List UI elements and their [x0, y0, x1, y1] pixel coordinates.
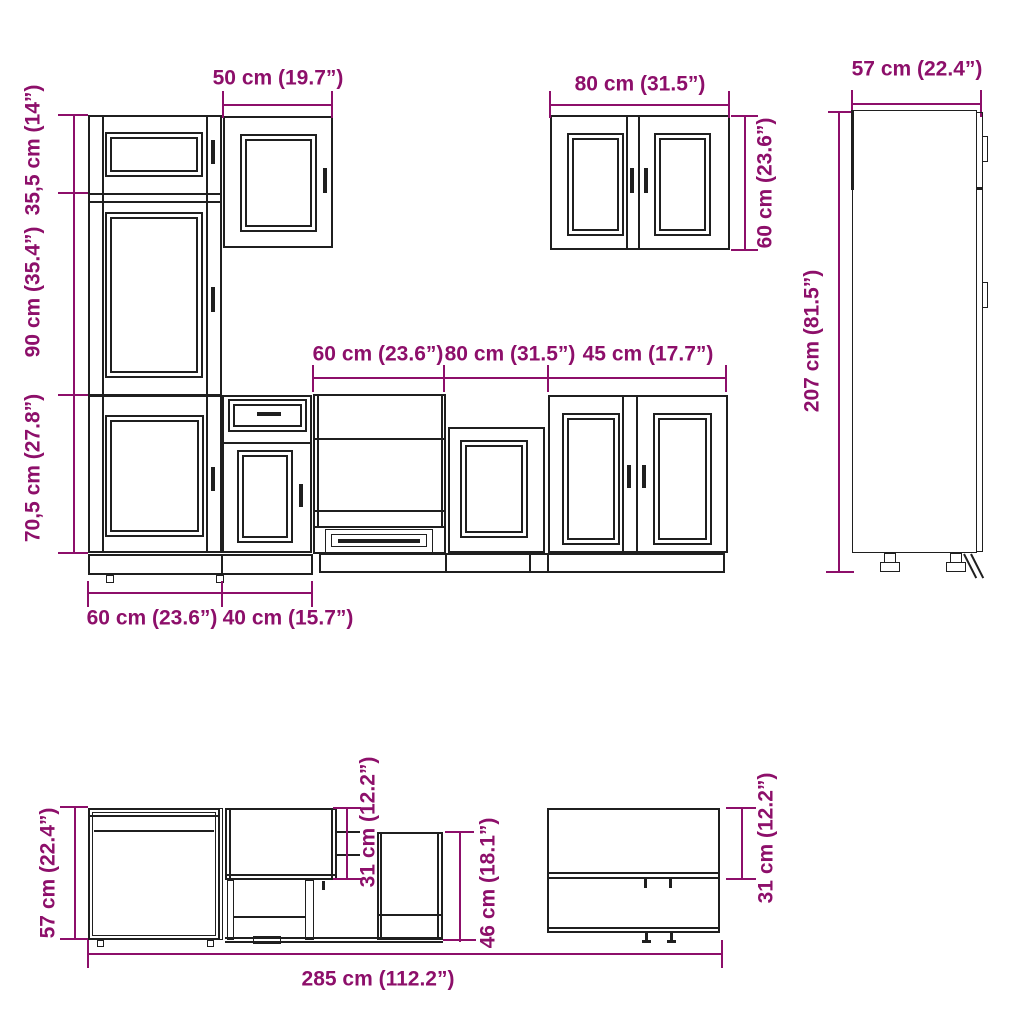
dim-tick — [731, 249, 758, 251]
plan-wall-inner-line — [229, 810, 231, 878]
plan-unit-46-inner-line — [380, 834, 382, 938]
door-split-line — [622, 397, 624, 551]
door-handle — [627, 465, 631, 488]
base-double-right-door-panel — [653, 413, 712, 545]
tall-cabinet-edge — [851, 110, 854, 190]
dim-label-bottom-60: 60 cm (23.6”) — [87, 608, 218, 629]
plan-unit-46-inner-line — [379, 914, 441, 916]
dim-tick — [445, 831, 474, 833]
oven-cabinet-inner-line — [441, 396, 443, 527]
door-handle — [630, 168, 634, 193]
dim-line-total-width — [88, 953, 723, 955]
cabinet-foot — [667, 940, 676, 943]
dim-line-tall-height — [838, 112, 840, 573]
door-handle — [211, 140, 215, 164]
dim-tick — [87, 581, 89, 607]
door-handle — [982, 282, 988, 308]
wall-cabinet-50-door-panel — [240, 134, 317, 232]
plan-support-leg — [227, 880, 234, 940]
plan-wall-cabinet-left — [225, 808, 337, 880]
pantry-rail-line — [88, 394, 222, 397]
dim-label-plan-46: 46 cm (18.1”) — [478, 818, 499, 949]
drawer-rail-line — [222, 442, 312, 444]
dim-tick — [58, 192, 88, 194]
cabinet-foot — [97, 940, 104, 947]
dim-tick — [726, 807, 756, 809]
base-double-left-door-panel — [562, 413, 620, 545]
dim-label-plan-31-right: 31 cm (12.2”) — [756, 773, 777, 904]
oven-vent-grille — [338, 539, 420, 543]
dim-label-tall-depth: 57 cm (22.4”) — [852, 59, 983, 80]
plan-base-top-line — [90, 815, 218, 817]
plan-wall-inner-line — [227, 874, 335, 876]
dim-tick — [58, 394, 88, 396]
pantry-lower-door-panel — [105, 415, 204, 537]
plan-wall-inner-line — [331, 810, 333, 878]
dim-label-pantry-lower: 70,5 cm (27.8”) — [23, 394, 44, 542]
pantry-rail-line — [88, 201, 222, 203]
plan-support-leg — [305, 880, 314, 940]
dim-label-oven-width: 60 cm (23.6”) — [313, 344, 444, 365]
oven-cabinet-inner-line — [317, 396, 319, 527]
dim-tick — [312, 365, 314, 392]
dim-tick — [549, 91, 551, 118]
dim-tick — [60, 806, 88, 808]
dim-label-tall-height: 207 cm (81.5”) — [802, 270, 823, 412]
cabinet-foot — [106, 575, 114, 583]
dim-tick — [826, 571, 854, 573]
dim-label-bottom-40: 40 cm (15.7”) — [223, 608, 354, 629]
tall-cabinet-door-front — [976, 112, 983, 552]
door-handle — [642, 465, 646, 488]
dim-tick — [311, 581, 313, 607]
base-cabinet-small-door-panel — [460, 440, 528, 538]
dim-label-pantry-middle: 90 cm (35.4”) — [23, 227, 44, 358]
dim-line-base-widths — [313, 377, 727, 379]
door-handle — [323, 168, 327, 193]
cabinet-foot — [642, 940, 651, 943]
dim-label-total-width: 285 cm (112.2”) — [302, 969, 455, 990]
dim-line-pantry-heights — [73, 115, 75, 553]
dim-tick — [87, 940, 89, 968]
dim-line-wall80-height — [744, 116, 746, 250]
door-handle — [982, 136, 988, 162]
wall-cabinet-80-right-door-panel — [654, 133, 711, 236]
dim-tick — [725, 365, 727, 392]
hinge-pin — [322, 881, 325, 890]
plan-right-inner-line — [549, 927, 718, 929]
dim-line-tall-depth — [852, 103, 982, 105]
dim-label-wall80-height: 60 cm (23.6”) — [755, 118, 776, 249]
dim-tick — [547, 365, 549, 392]
door-handle — [644, 168, 648, 193]
dim-line-plan-31-right — [741, 808, 743, 880]
dim-line-bottom-widths — [88, 592, 313, 594]
dim-label-wall50: 50 cm (19.7”) — [213, 68, 344, 89]
pantry-upper-door-panel — [105, 132, 203, 177]
dim-label-base80-width: 80 cm (31.5”) — [445, 344, 576, 365]
pantry-right-stile — [206, 117, 208, 551]
dim-tick — [60, 938, 88, 940]
dim-tick — [221, 581, 223, 607]
drawer-unit-door-panel — [237, 450, 293, 543]
hinge-pin — [669, 879, 672, 888]
tall-cabinet-side — [852, 110, 977, 553]
dim-tick — [828, 111, 852, 113]
plan-support-shelf-line — [234, 916, 305, 918]
plinth-left — [88, 554, 313, 575]
plinth-divider — [547, 553, 549, 573]
door-split-line — [638, 117, 640, 248]
dim-tick — [58, 114, 88, 116]
dim-label-plan-31-left: 31 cm (12.2”) — [358, 757, 379, 888]
rear-foot-bracket — [970, 554, 984, 579]
door-handle — [299, 484, 303, 507]
dim-tick — [443, 939, 476, 941]
hinge-pin — [644, 879, 647, 888]
cabinet-foot — [207, 940, 214, 947]
plan-unit-46-inner-line — [437, 834, 439, 938]
door-handle — [211, 287, 215, 312]
dim-label-wall80-width: 80 cm (31.5”) — [575, 74, 706, 95]
plan-right-split-line — [549, 877, 718, 879]
plan-right-split-line — [549, 872, 718, 874]
plan-base-top-line — [94, 830, 214, 832]
door-gap-line — [976, 187, 983, 190]
wall-cabinet-80-left-door-panel — [567, 133, 624, 236]
dim-line-wall80 — [550, 104, 730, 106]
dim-tick — [58, 552, 88, 554]
dim-label-pantry-upper: 35,5 cm (14”) — [23, 85, 44, 216]
plan-wall-cabinet-right — [547, 808, 720, 933]
door-handle — [211, 467, 215, 491]
pantry-rail-line — [88, 193, 222, 195]
drawer-handle — [257, 412, 281, 416]
dim-line-plan-46 — [459, 832, 461, 942]
pantry-middle-door-panel — [105, 212, 203, 378]
kitchen-cabinet-dimension-diagram: 35,5 cm (14”) 90 cm (35.4”) 70,5 cm (27.… — [0, 0, 1024, 1024]
dim-tick — [726, 878, 756, 880]
oven-cabinet-shelf-line — [315, 510, 444, 512]
dim-tick — [728, 91, 730, 118]
dim-label-base45-width: 45 cm (17.7”) — [583, 344, 714, 365]
dim-line-plan-57 — [74, 807, 76, 940]
plan-handle-detail — [253, 936, 281, 944]
dim-tick — [222, 91, 224, 118]
adjustable-foot-base — [880, 562, 900, 572]
oven-cabinet-shelf-line — [315, 526, 444, 528]
plinth-divider — [445, 553, 447, 573]
dim-tick — [331, 91, 333, 118]
filler-strip — [218, 808, 223, 940]
plinth-divider — [529, 553, 531, 573]
plinth-middle — [319, 553, 725, 573]
plan-unit-46 — [377, 832, 443, 940]
plinth-divider — [221, 554, 223, 575]
dim-tick — [721, 940, 723, 968]
door-split-line — [626, 117, 628, 248]
dim-line-plan-31-left — [346, 808, 348, 880]
oven-cabinet-shelf-line — [313, 438, 446, 440]
door-split-line — [636, 397, 638, 551]
pantry-left-stile — [102, 117, 104, 551]
dim-label-plan-57: 57 cm (22.4”) — [38, 808, 59, 939]
adjustable-foot-base — [946, 562, 966, 572]
dim-tick — [443, 365, 445, 392]
dim-line-wall50 — [223, 104, 333, 106]
